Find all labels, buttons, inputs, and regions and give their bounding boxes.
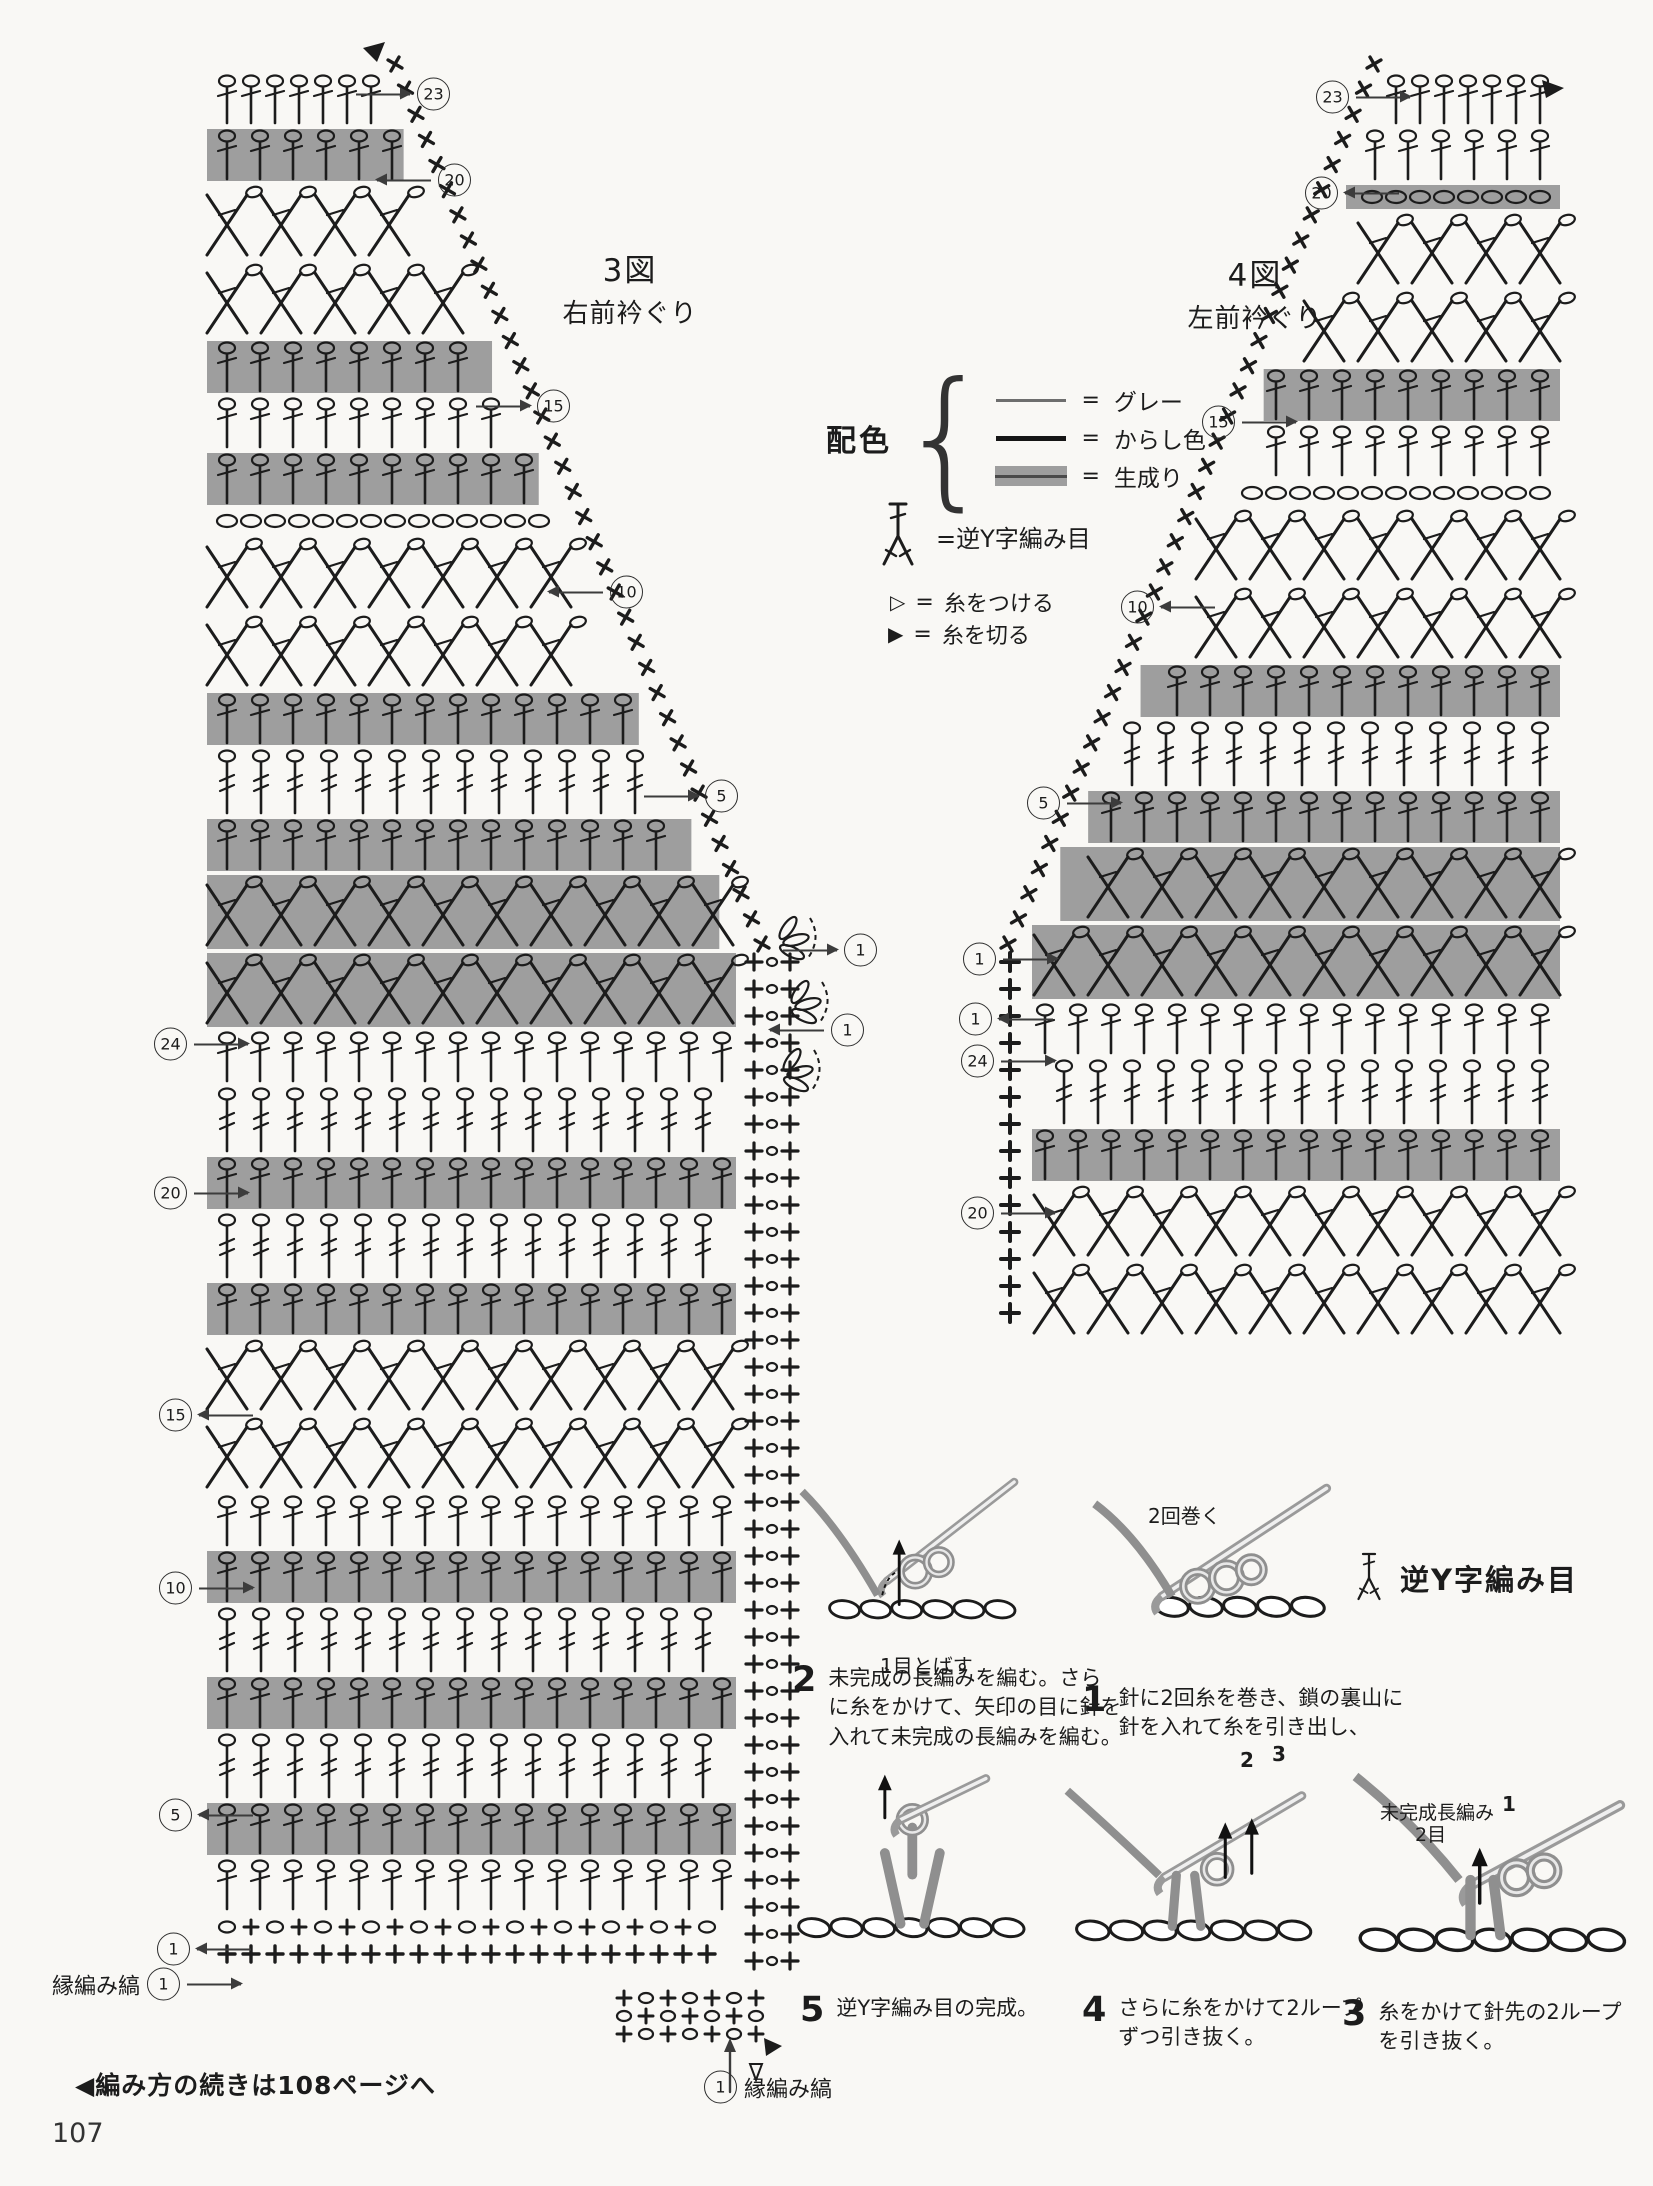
row-number: 10 [610,576,643,609]
row-number: 1 [704,2071,737,2104]
row-arrow [1001,1060,1055,1062]
row-arrow [1242,421,1296,423]
chart4-title: 4図 左前衿ぐり [1140,253,1370,339]
chart3-figure-label: 3図 [520,248,740,295]
inverse-y-heading: 逆Y字編み目 [1352,1548,1578,1608]
row-marker: 1 [963,943,1057,976]
row-marker: 24 [154,1028,248,1061]
step-5-illustration [775,1742,1030,1972]
row-number: 15 [1202,406,1235,439]
row-marker: 縁編み縞1 [52,1968,241,2001]
row-marker: 23 [356,78,450,111]
legend-item-gray: = グレー [995,387,1205,413]
cut-yarn-label: 糸を切る [942,618,1030,650]
row-arrow [199,1814,253,1816]
step-text: 針に2回糸を巻き、鎖の裏山に針を入れて糸を引き出し、 [1118,1684,1422,1743]
row-number: 1 [844,934,877,967]
step-text: さらに糸をかけて2ループずつ引き抜く。 [1118,1994,1372,2053]
row-marker: 5 [159,1799,253,1832]
step-4-illustration [1052,1742,1317,1972]
step-number: 4 [1082,1994,1106,2027]
row-number: 1 [147,1968,180,2001]
row-number: 1 [831,1014,864,1047]
stitch-symbol-legend: =逆Y字編み目 [876,496,1091,576]
row-arrow [1003,958,1057,960]
step-number: 3 [1342,1998,1366,2031]
step-number: 5 [800,1994,824,2027]
row-arrow [1067,802,1121,804]
row-number: 5 [1027,787,1060,820]
chart4-figure-label: 4図 [1140,253,1370,300]
chart3-subtitle: 右前衿ぐり [520,295,740,334]
row-arrow [770,1029,824,1031]
row-arrow [783,949,837,951]
legend-item-natural: = 生成り [995,463,1205,489]
arrow-3-label: 3 [1272,1742,1286,1766]
gray-band-swatch [995,466,1067,486]
arrow-2-label: 2 [1240,1748,1254,1772]
row-arrow [194,1043,248,1045]
step-1-caption: 1 針に2回糸を巻き、鎖の裏山に針を入れて糸を引き出し、 [1082,1684,1422,1743]
row-marker: 15 [159,1399,253,1432]
step-text: 糸をかけて針先の2ループを引き抜く。 [1378,1998,1642,2057]
inverse-y-heading-label: 逆Y字編み目 [1400,1557,1578,1599]
row-arrow [187,1983,241,1985]
continued-on-page-note: ◀編み方の続きは108ページへ [75,2066,436,2102]
legend-heading: 配色 [826,416,892,460]
step-2-illustration [788,1448,1033,1648]
edge-stripe-label: 縁編み縞 [52,1968,140,2000]
stitch-symbol-label: =逆Y字編み目 [936,519,1091,554]
row-number: 1 [959,1003,992,1036]
row-number: 5 [159,1799,192,1832]
two-stitches-label: 2目 [1415,1820,1446,1847]
row-arrow [377,179,431,181]
row-arrow [999,1018,1053,1020]
row-number: 24 [154,1028,187,1061]
row-arrow [199,1414,253,1416]
row-marker: 5 [1027,787,1121,820]
legend-item-mustard: = からし色 [995,425,1205,451]
row-marker: 10 [1121,591,1215,624]
chart-right-front-neckline [150,40,870,2110]
row-number: 20 [1305,177,1338,210]
row-marker: 5 [644,780,738,813]
step-4-caption: 4 さらに糸をかけて2ループずつ引き抜く。 [1082,1994,1372,2053]
row-marker: 1縁編み縞 [704,2071,832,2104]
legend-label-mustard: からし色 [1114,421,1206,455]
row-number: 20 [154,1177,187,1210]
row-number: 23 [1316,81,1349,114]
row-arrow [1356,96,1410,98]
row-arrow [476,405,530,407]
row-number: 20 [438,164,471,197]
step-3-illustration [1322,1742,1642,1972]
thick-line-swatch [995,436,1067,441]
row-number: 20 [961,1197,994,1230]
step-text: 逆Y字編み目の完成。 [836,1994,1038,2023]
row-marker: 20 [377,164,471,197]
cut-yarn-icon: ▶ [888,622,903,646]
wrap-twice-label: 2回巻く [1148,1500,1221,1529]
step-number: 2 [792,1664,816,1697]
pattern-page: 3図 右前衿ぐり 4図 左前衿ぐり 配色 { = グレー = からし色 = 生成… [0,0,1653,2186]
row-arrow [549,591,603,593]
skip-one-stitch-label: 1目とばす [880,1650,973,1679]
cut-yarn-legend: ▶ = 糸を切る [888,618,1030,650]
attach-yarn-icon: ▷ [890,590,905,614]
step-text: 未完成の長編みを編む。さらに糸をかけて、矢印の目に針を入れて未完成の長編みを編む… [828,1664,1122,1752]
step-3-caption: 3 糸をかけて針先の2ループを引き抜く。 [1342,1998,1642,2057]
row-arrow [644,795,698,797]
row-marker: 1 [783,934,877,967]
attach-yarn-label: 糸をつける [944,586,1054,618]
step-number: 1 [1082,1684,1106,1717]
row-marker: 20 [154,1177,248,1210]
row-marker: 10 [549,576,643,609]
legend-label-gray: グレー [1114,383,1183,417]
row-arrow [1161,606,1215,608]
row-number: 15 [159,1399,192,1432]
row-marker: 23 [1316,81,1410,114]
row-number: 10 [1121,591,1154,624]
row-marker: 10 [159,1572,253,1605]
row-marker: 24 [961,1045,1055,1078]
legend-brace: { [898,378,993,498]
row-number: 1 [963,943,996,976]
row-marker: 1 [157,1933,251,1966]
legend-label-natural: 生成り [1114,459,1183,493]
row-arrow [197,1948,251,1950]
row-number: 10 [159,1572,192,1605]
row-marker: 20 [1305,177,1399,210]
row-marker: 1 [770,1014,864,1047]
row-number: 23 [417,78,450,111]
row-number: 15 [537,390,570,423]
row-number: 5 [705,780,738,813]
arrow-1-label: 1 [1502,1792,1516,1816]
color-legend: 配色 { = グレー = からし色 = 生成り [826,378,1206,498]
thin-line-swatch [995,399,1067,402]
row-arrow [356,93,410,95]
row-marker: 15 [476,390,570,423]
row-marker: 15 [1202,406,1296,439]
edge-stripe-label: 縁編み縞 [744,2071,832,2103]
inverse-y-stitch-icon [876,496,920,576]
row-number: 1 [157,1933,190,1966]
row-arrow [1001,1212,1055,1214]
row-marker: 1 [959,1003,1053,1036]
row-arrow [1345,192,1399,194]
row-arrow [194,1192,248,1194]
step-1-illustration [1068,1442,1348,1648]
attach-yarn-legend: ▷ = 糸をつける [890,586,1054,618]
inverse-y-stitch-icon [1352,1548,1386,1608]
chart3-title: 3図 右前衿ぐり [520,248,740,334]
row-number: 24 [961,1045,994,1078]
page-number: 107 [52,2118,104,2149]
chart4-subtitle: 左前衿ぐり [1140,300,1370,339]
row-marker: 20 [961,1197,1055,1230]
row-arrow [199,1587,253,1589]
step-5-caption: 5 逆Y字編み目の完成。 [800,1994,1110,2027]
